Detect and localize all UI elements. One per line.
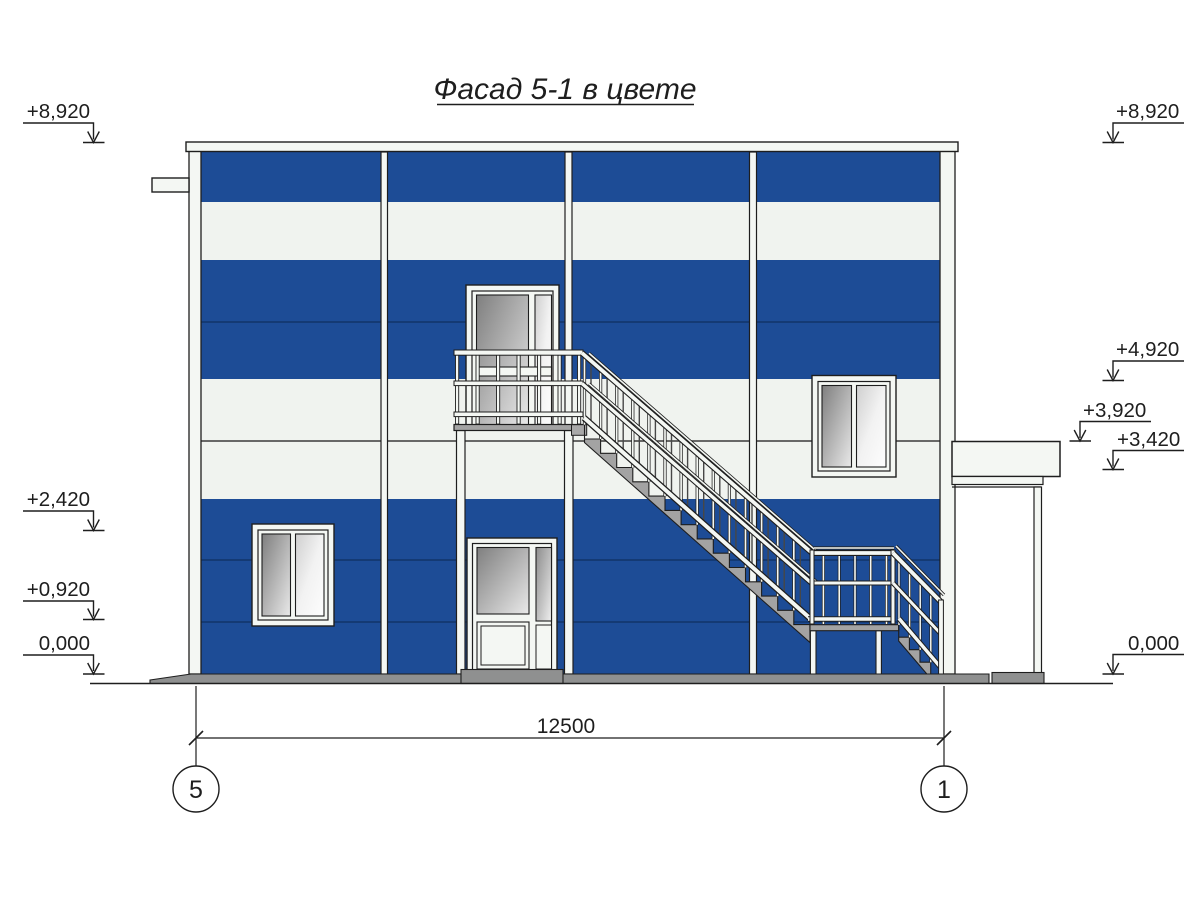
svg-text:+8,920: +8,920 (27, 100, 90, 123)
svg-text:+0,920: +0,920 (27, 578, 90, 601)
svg-text:Фасад 5-1 в цвете: Фасад 5-1 в цвете (434, 73, 697, 106)
svg-text:12500: 12500 (537, 715, 595, 738)
svg-text:+3,920: +3,920 (1083, 399, 1146, 422)
svg-text:+8,920: +8,920 (1116, 100, 1179, 123)
svg-text:1: 1 (937, 776, 951, 804)
svg-text:0,000: 0,000 (1128, 632, 1179, 655)
svg-text:5: 5 (189, 776, 203, 804)
svg-text:+4,920: +4,920 (1116, 338, 1179, 361)
svg-text:+2,420: +2,420 (27, 488, 90, 511)
svg-text:0,000: 0,000 (39, 632, 90, 655)
svg-text:+3,420: +3,420 (1117, 428, 1180, 451)
